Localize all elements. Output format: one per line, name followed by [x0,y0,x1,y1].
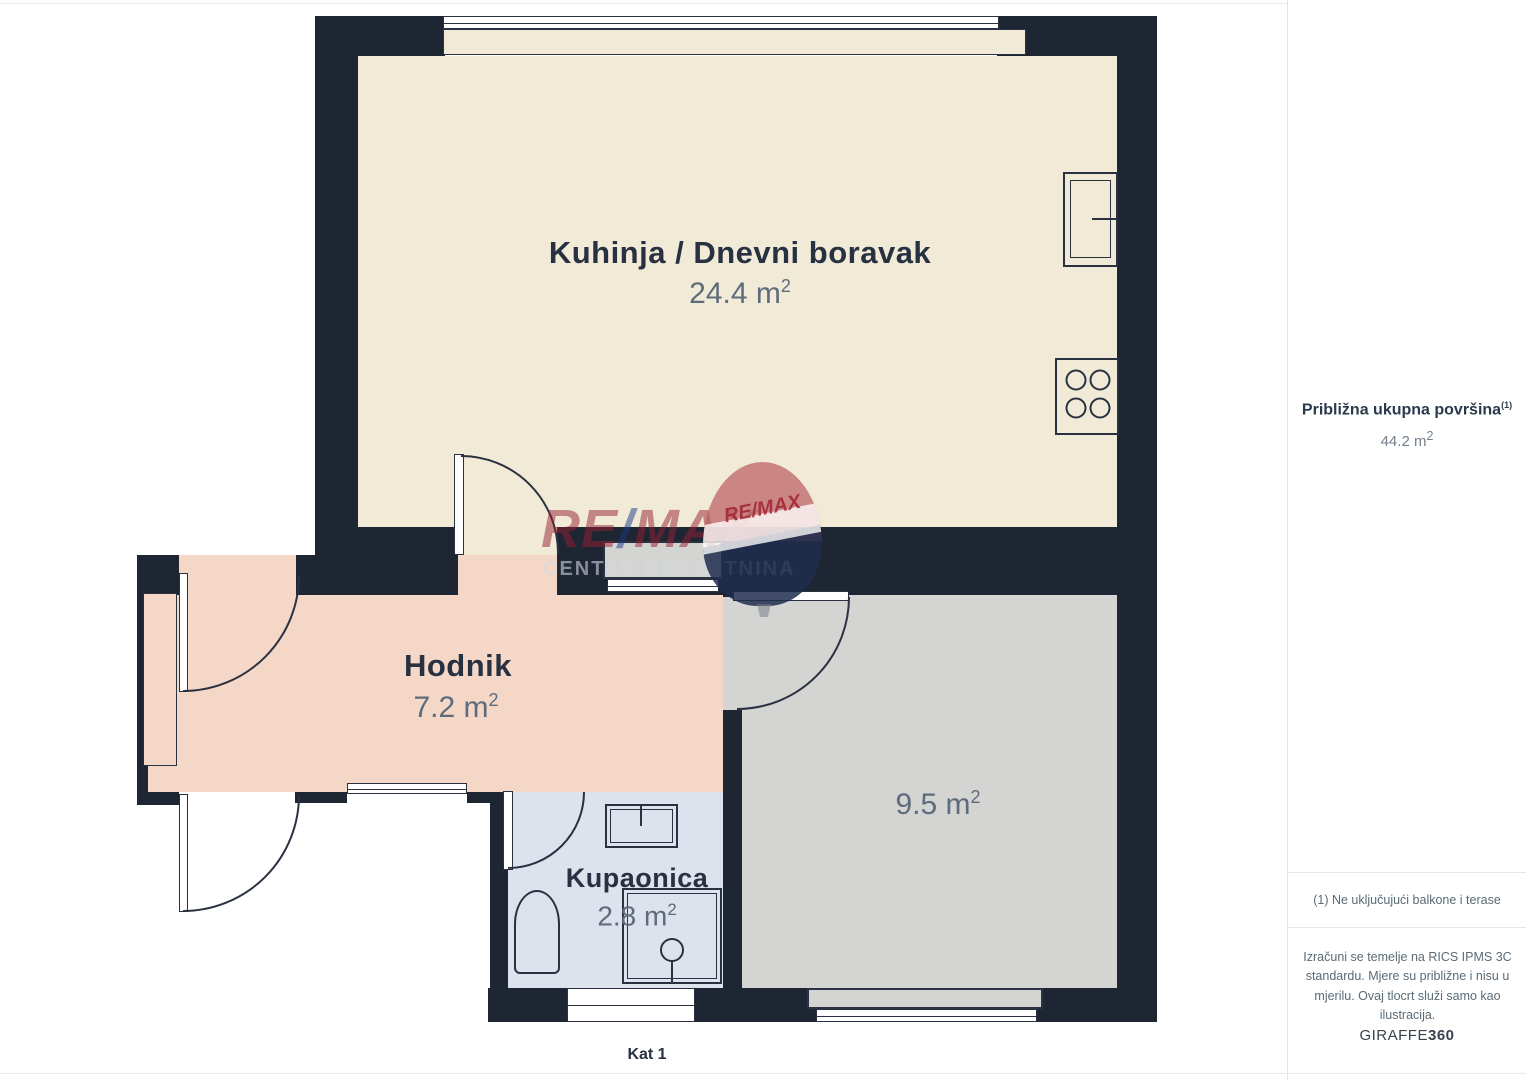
door-arc-kitchen [461,456,558,553]
room-label-bathroom: Kupaonica [566,863,709,894]
footnote-ref: (1) [1501,400,1512,410]
footnote-box: (1) Ne uključujući balkone i terase [1288,872,1526,928]
door-arc-exterior [183,795,299,911]
burner-1 [1067,371,1086,390]
floor-label: Kat 1 [627,1046,666,1064]
room-label-kitchen: Kuhinja / Dnevni boravak [549,235,931,271]
room-area-bathroom: 2.8 m2 [597,900,676,932]
burner-3 [1067,399,1086,418]
giraffe360-logo: GIRAFFE360 [1288,1027,1526,1044]
info-sidebar: Približna ukupna površina(1) 44.2 m2 (1)… [1287,0,1526,1080]
burner-4 [1091,399,1110,418]
room-area-kitchen: 24.4 m2 [689,276,791,311]
disclaimer-text: Izračuni se temelje na RICS IPMS 3C stan… [1302,948,1513,1026]
total-area-value: 44.2 m2 [1288,429,1526,450]
room-label-hallway: Hodnik [404,648,512,684]
total-area-title: Približna ukupna površina(1) [1288,400,1526,419]
burner-2 [1091,371,1110,390]
door-arc-entrance [183,575,299,691]
room-area-unlabeled: 9.5 m2 [895,787,980,822]
shower-drain [661,939,683,961]
floorplan-page: Kuhinja / Dnevni boravak 24.4 m2 Hodnik … [0,0,1526,1080]
room-area-hallway: 7.2 m2 [413,690,498,725]
door-arc-room [737,597,849,709]
page-bottom-divider [0,1073,1526,1074]
door-arc-bathroom [508,792,584,868]
footnote-text: (1) Ne uključujući balkone i terase [1313,893,1501,907]
